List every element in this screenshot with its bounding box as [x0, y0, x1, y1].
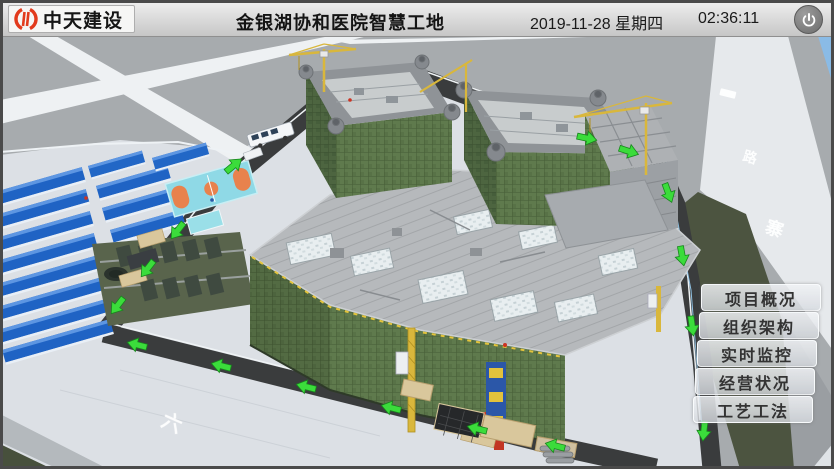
menu-business-status[interactable]: 经营状况 [695, 368, 815, 395]
header-time: 02:36:11 [698, 10, 759, 28]
header-bar: 中天建设 金银湖协和医院智慧工地 2019-11-28 星期四 02:36:11 [3, 3, 831, 37]
menu-realtime-monitoring[interactable]: 实时监控 [697, 340, 817, 367]
smart-site-dashboard: { "header": { "logo_text": "中天建设", "titl… [0, 0, 834, 469]
logo-text: 中天建设 [43, 6, 123, 33]
power-button[interactable] [794, 5, 823, 34]
menu-construction-methods[interactable]: 工艺工法 [693, 396, 813, 423]
logo-panel: 中天建设 [8, 5, 135, 33]
menu-organization[interactable]: 组织架构 [699, 312, 819, 339]
menu-project-overview[interactable]: 项目概况 [701, 284, 821, 311]
zhongtian-logo-icon [14, 7, 38, 31]
header-date: 2019-11-28 星期四 [530, 10, 663, 34]
power-icon [801, 12, 817, 28]
page-title: 金银湖协和医院智慧工地 [236, 9, 445, 35]
